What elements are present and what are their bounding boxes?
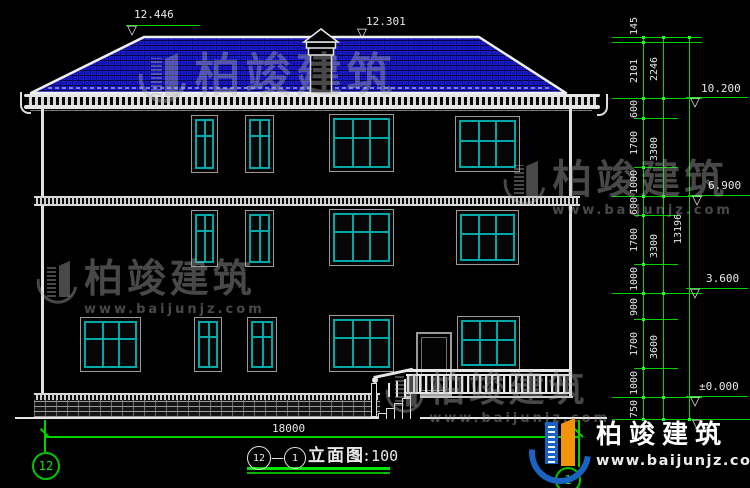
title-scale: 1:100 xyxy=(353,449,398,464)
title-axis-a: 12 xyxy=(253,453,265,464)
watermark-brand: 柏竣建筑 xyxy=(84,260,265,299)
elevation-value: 12.301 xyxy=(366,16,406,27)
dim-label: 3300 xyxy=(650,234,660,258)
dim-label: 1000 xyxy=(630,170,640,194)
dim-label: 145 xyxy=(630,17,640,35)
watermark-logo-icon xyxy=(138,52,186,104)
dim-label: 3600 xyxy=(650,335,660,359)
width-dim-label: 18000 xyxy=(272,423,305,434)
watermark-url: www.baijunjz.com xyxy=(552,204,733,217)
dim-label: 3300 xyxy=(650,137,660,161)
elevation-triangle-icon: ▽ xyxy=(690,287,700,300)
site-logo: 柏竣建筑 www.baijunjz.com xyxy=(528,414,750,476)
watermark-logo-icon xyxy=(36,260,77,304)
dim-label: 1700 xyxy=(630,332,640,356)
dim-label: 2246 xyxy=(650,57,660,81)
dim-label: 1000 xyxy=(630,267,640,291)
elevation-value: 12.446 xyxy=(134,9,174,20)
title-separator: — xyxy=(271,452,284,465)
elevation-value: ±0.000 xyxy=(699,381,739,392)
dim-label: 600 xyxy=(630,100,640,118)
watermark-brand: 柏竣建筑 xyxy=(552,160,733,200)
site-logo-brand: 柏竣建筑 xyxy=(596,421,750,450)
axis-label: 12 xyxy=(39,459,53,473)
watermark-left: 柏竣建筑 www.baijunjz.com xyxy=(36,260,265,316)
elevation-value: 10.200 xyxy=(701,83,741,94)
site-logo-icon xyxy=(528,414,586,476)
elevation-triangle-icon: ▽ xyxy=(692,194,702,207)
elevation-value: 6.900 xyxy=(708,180,741,191)
dim-label: 900 xyxy=(630,298,640,316)
elevation-triangle-icon: ▽ xyxy=(690,395,700,408)
axis-bubble-left: 12 xyxy=(32,452,60,480)
title-axis-b: 1 xyxy=(292,453,298,464)
dim-label: 1000 xyxy=(630,371,640,395)
watermark-right: 柏竣建筑 www.baijunjz.com xyxy=(503,160,733,217)
elevation-triangle-icon: ▽ xyxy=(357,27,367,40)
elevation-triangle-icon: ▽ xyxy=(127,24,137,37)
dim-label: 1700 xyxy=(630,131,640,155)
watermark-brand: 柏竣建筑 xyxy=(195,52,397,98)
elevation-value: 3.600 xyxy=(706,273,739,284)
dim-label: 1700 xyxy=(630,228,640,252)
watermark-url: www.baijunjz.com xyxy=(84,303,265,316)
dim-label: 2101 xyxy=(630,59,640,83)
watermark-logo-icon xyxy=(503,160,545,205)
dim-total-label: 13196 xyxy=(674,214,684,244)
cad-elevation-drawing: 柏竣建筑 柏竣建筑 www.baijunjz.com 柏竣建筑 www.baij… xyxy=(0,0,750,488)
watermark-top: 柏竣建筑 xyxy=(138,52,397,104)
watermark-brand: 柏竣建筑 xyxy=(429,372,610,408)
site-logo-url: www.baijunjz.com xyxy=(596,453,750,469)
elevation-triangle-icon: ▽ xyxy=(690,96,700,109)
dim-label: 600 xyxy=(630,197,640,215)
watermark-logo-icon xyxy=(385,372,423,412)
